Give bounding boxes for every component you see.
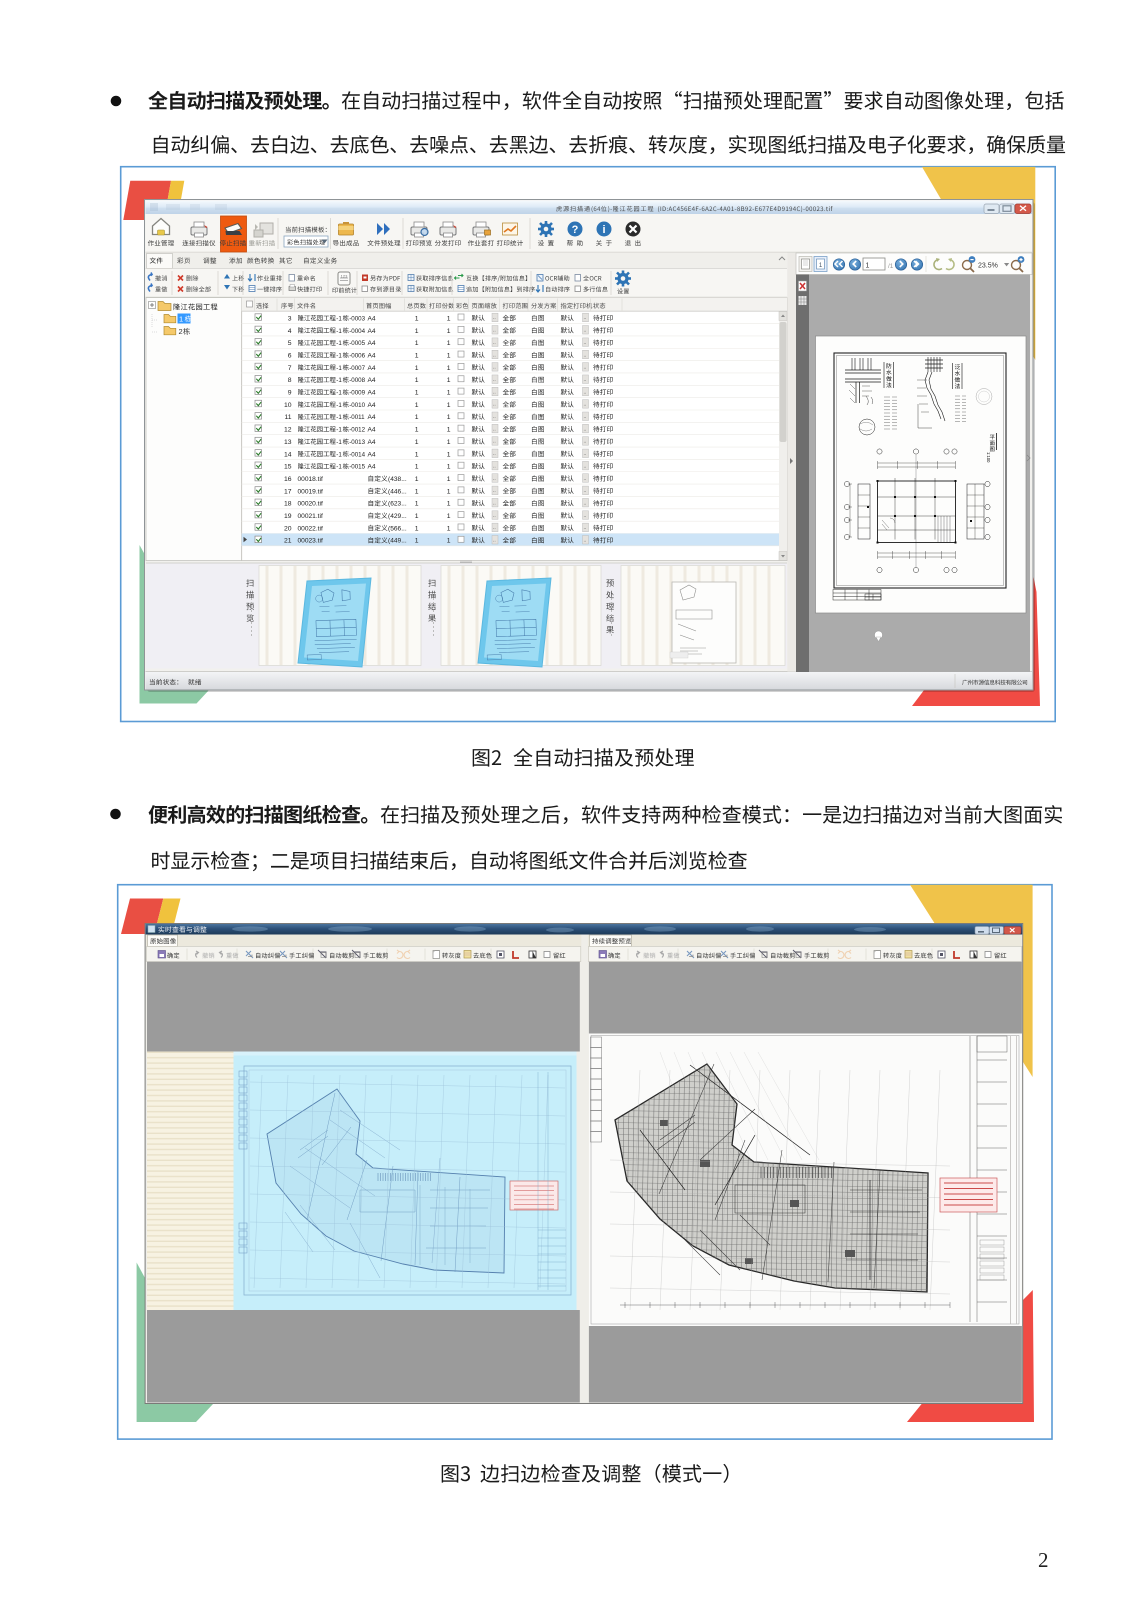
svg-text:..: .. <box>584 538 587 544</box>
svg-text:..: .. <box>584 500 587 506</box>
svg-text:1: 1 <box>447 464 451 471</box>
svg-text:1: 1 <box>415 414 419 421</box>
svg-text:..: .. <box>584 476 587 482</box>
svg-text:..: .. <box>493 439 496 445</box>
svg-text:A4: A4 <box>368 377 376 384</box>
svg-text:-1: -1 <box>336 427 342 434</box>
svg-text:21: 21 <box>284 538 292 545</box>
svg-text:..: .. <box>584 389 587 395</box>
svg-text:..: .. <box>584 328 587 334</box>
svg-text:13: 13 <box>284 439 292 446</box>
svg-text:-0010: -0010 <box>349 402 365 409</box>
svg-text:..: .. <box>493 365 496 371</box>
svg-text:-0007: -0007 <box>349 365 365 372</box>
svg-text:-0012: -0012 <box>349 427 365 434</box>
svg-text:A4: A4 <box>368 464 376 471</box>
svg-text:i: i <box>602 224 605 236</box>
svg-text:1: 1 <box>179 315 183 324</box>
svg-text:1: 1 <box>447 427 451 434</box>
svg-text:-1: -1 <box>336 402 342 409</box>
svg-text:(566...: (566... <box>388 525 407 532</box>
svg-text:-1: -1 <box>336 377 342 384</box>
svg-text:-0004: -0004 <box>349 328 365 335</box>
svg-text:123: 123 <box>341 274 348 279</box>
svg-text:1: 1 <box>415 315 419 322</box>
svg-text:6: 6 <box>288 352 292 359</box>
svg-text:A4: A4 <box>368 365 376 372</box>
svg-text:1: 1 <box>447 340 451 347</box>
svg-text:3: 3 <box>288 315 292 322</box>
svg-text:1: 1 <box>415 488 419 495</box>
svg-text:..: .. <box>584 414 587 420</box>
svg-text:..: .. <box>493 328 496 334</box>
svg-text:-0008: -0008 <box>349 377 365 384</box>
svg-text:..: .. <box>493 414 496 420</box>
svg-text:1: 1 <box>415 365 419 372</box>
svg-text:A4: A4 <box>368 451 376 458</box>
svg-text:1: 1 <box>415 476 419 483</box>
svg-text:..: .. <box>584 451 587 457</box>
svg-text:..: .. <box>584 340 587 346</box>
svg-text:1: 1 <box>447 501 451 508</box>
svg-text:1: 1 <box>866 263 870 270</box>
svg-text:1: 1 <box>415 439 419 446</box>
svg-text:..: .. <box>493 500 496 506</box>
svg-text:(449...: (449... <box>388 538 407 545</box>
svg-text:..: .. <box>493 389 496 395</box>
svg-text:..: .. <box>584 377 587 383</box>
svg-text:1: 1 <box>447 328 451 335</box>
svg-text:1: 1 <box>415 451 419 458</box>
svg-text:(438...: (438... <box>388 476 407 483</box>
svg-text:11: 11 <box>284 414 291 421</box>
svg-text:A4: A4 <box>368 315 376 322</box>
svg-text:..: .. <box>584 352 587 358</box>
svg-text:1: 1 <box>447 365 451 372</box>
svg-text:-1: -1 <box>336 365 342 372</box>
svg-text:A4: A4 <box>368 340 376 347</box>
svg-text:..: .. <box>584 513 587 519</box>
svg-text:00021.tif: 00021.tif <box>298 513 323 520</box>
svg-text:1: 1 <box>415 427 419 434</box>
svg-text:17: 17 <box>284 488 292 495</box>
svg-text:20: 20 <box>284 525 292 532</box>
svg-text:00019.tif: 00019.tif <box>298 488 323 495</box>
svg-text:..: .. <box>584 315 587 321</box>
svg-text:..: .. <box>493 451 496 457</box>
svg-text:18: 18 <box>284 501 292 508</box>
svg-text:1: 1 <box>415 501 419 508</box>
svg-text:..: .. <box>584 463 587 469</box>
svg-text:1: 1 <box>447 538 451 545</box>
svg-text:00022.tif: 00022.tif <box>298 525 323 532</box>
svg-text:..: .. <box>493 315 496 321</box>
svg-text:(429...: (429... <box>388 513 407 520</box>
svg-text:..: .. <box>493 402 496 408</box>
svg-text:A4: A4 <box>368 402 376 409</box>
svg-text:1: 1 <box>415 538 419 545</box>
svg-text:16: 16 <box>284 476 292 483</box>
svg-text:..: .. <box>493 340 496 346</box>
svg-text:1: 1 <box>415 377 419 384</box>
svg-text:1: 1 <box>447 390 451 397</box>
svg-text:?: ? <box>572 224 579 236</box>
svg-text:..: .. <box>493 377 496 383</box>
svg-text:..: .. <box>493 476 496 482</box>
svg-text:14: 14 <box>284 451 292 458</box>
svg-text:1: 1 <box>447 513 451 520</box>
svg-text:00023.tif: 00023.tif <box>298 538 323 545</box>
svg-text:1: 1 <box>447 476 451 483</box>
svg-text:-1: -1 <box>336 315 342 322</box>
svg-text:-0015: -0015 <box>349 464 365 471</box>
svg-text:-1: -1 <box>336 390 342 397</box>
svg-text:1: 1 <box>415 525 419 532</box>
svg-text:A4: A4 <box>368 439 376 446</box>
svg-text:-0005: -0005 <box>349 340 365 347</box>
svg-text:-0011: -0011 <box>349 414 365 421</box>
svg-text:..: .. <box>493 525 496 531</box>
svg-text:A4: A4 <box>368 414 376 421</box>
svg-text:1: 1 <box>447 525 451 532</box>
svg-text:..: .. <box>584 365 587 371</box>
svg-text:10: 10 <box>284 402 292 409</box>
svg-text:-1: -1 <box>336 328 342 335</box>
svg-text:(623...: (623... <box>388 501 407 508</box>
svg-text:00020.tif: 00020.tif <box>298 501 323 508</box>
svg-text:..: .. <box>493 538 496 544</box>
svg-text:2: 2 <box>1038 1548 1049 1572</box>
svg-text:-1: -1 <box>336 439 342 446</box>
svg-text:-0014: -0014 <box>349 451 365 458</box>
svg-text:-0009: -0009 <box>349 390 365 397</box>
svg-text:1: 1 <box>415 352 419 359</box>
svg-text:9: 9 <box>288 390 292 397</box>
svg-text:..: .. <box>493 463 496 469</box>
svg-text:23.5%: 23.5% <box>978 263 998 270</box>
svg-text:..: .. <box>584 488 587 494</box>
svg-text:..: .. <box>584 439 587 445</box>
svg-text:..: .. <box>493 488 496 494</box>
svg-text:1: 1 <box>447 451 451 458</box>
svg-text:-1: -1 <box>336 352 342 359</box>
svg-text:A4: A4 <box>368 427 376 434</box>
svg-text:1:100: 1:100 <box>986 452 991 463</box>
svg-text:1: 1 <box>447 402 451 409</box>
svg-text:1: 1 <box>447 377 451 384</box>
svg-text:-1: -1 <box>336 414 342 421</box>
svg-text:4: 4 <box>288 328 292 335</box>
svg-text:1: 1 <box>415 340 419 347</box>
svg-text:..: .. <box>493 426 496 432</box>
svg-text:8: 8 <box>288 377 292 384</box>
svg-text:19: 19 <box>284 513 292 520</box>
svg-text:1: 1 <box>415 390 419 397</box>
svg-text:/1: /1 <box>888 263 894 270</box>
svg-text:-1: -1 <box>336 464 342 471</box>
svg-text:-0006: -0006 <box>349 352 365 359</box>
svg-text:A4: A4 <box>368 328 376 335</box>
svg-text:7: 7 <box>288 365 292 372</box>
svg-text:..: .. <box>493 513 496 519</box>
svg-text:-0013: -0013 <box>349 439 365 446</box>
svg-text:1: 1 <box>447 439 451 446</box>
svg-text:1: 1 <box>447 488 451 495</box>
svg-text:..: .. <box>584 402 587 408</box>
svg-text:1: 1 <box>415 402 419 409</box>
svg-text:A4: A4 <box>368 390 376 397</box>
svg-text:..: .. <box>493 352 496 358</box>
svg-text:1: 1 <box>415 513 419 520</box>
svg-text:..: .. <box>584 426 587 432</box>
svg-text:12: 12 <box>284 427 292 434</box>
svg-text:1: 1 <box>415 328 419 335</box>
svg-text:1: 1 <box>415 464 419 471</box>
svg-text:1: 1 <box>447 352 451 359</box>
svg-text:..: .. <box>584 525 587 531</box>
svg-text:A4: A4 <box>368 352 376 359</box>
svg-text:5: 5 <box>288 340 292 347</box>
svg-text:1: 1 <box>447 315 451 322</box>
svg-text:1: 1 <box>447 414 451 421</box>
svg-text:(446...: (446... <box>388 488 407 495</box>
svg-text:00018.tif: 00018.tif <box>298 476 323 483</box>
svg-text:2: 2 <box>179 327 183 336</box>
svg-text:-0003: -0003 <box>349 315 365 322</box>
svg-text:15: 15 <box>284 464 292 471</box>
svg-text:-1: -1 <box>336 340 342 347</box>
svg-text:-1: -1 <box>336 451 342 458</box>
